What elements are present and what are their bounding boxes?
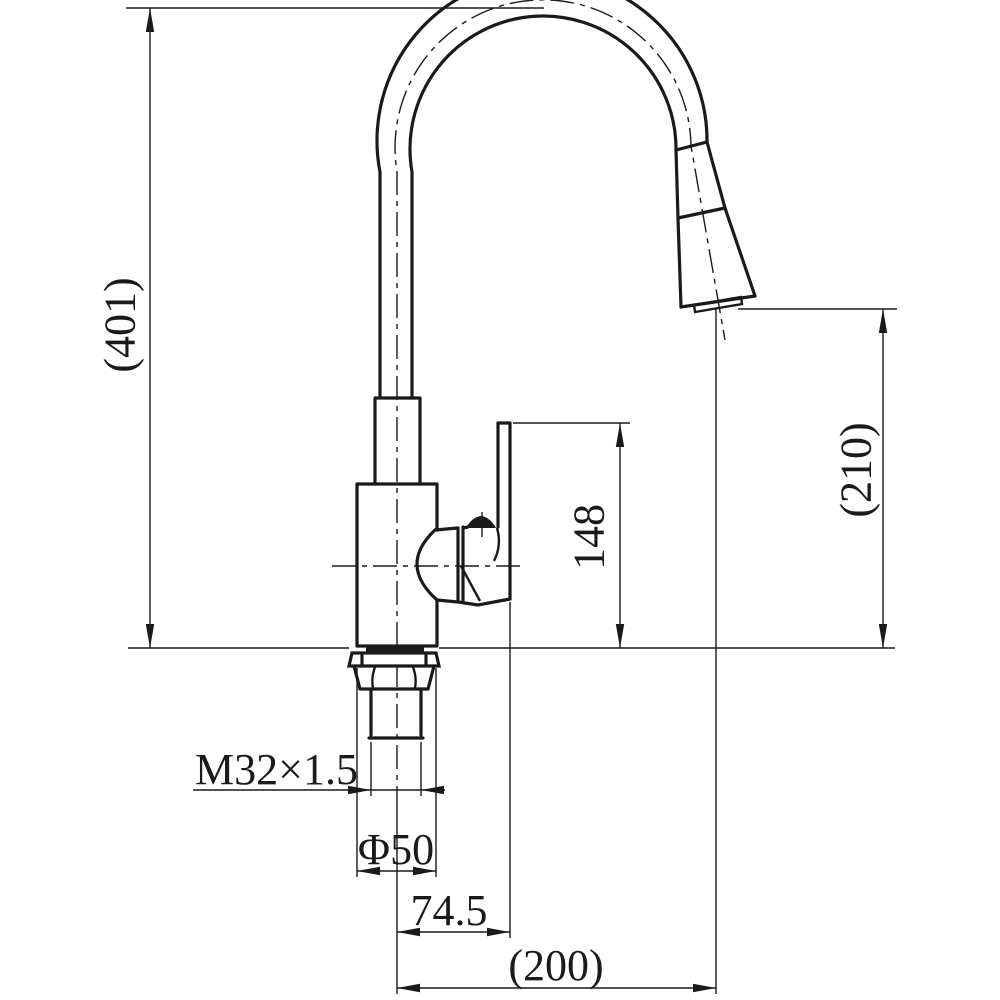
faucet-technical-drawing: (401) (210) 148 M32×1.5 Φ50 74.5 (200): [0, 0, 1000, 1000]
dim-label-center-to-handle: 74.5: [411, 886, 488, 935]
drawing-canvas: (401) (210) 148 M32×1.5 Φ50 74.5 (200): [0, 0, 1000, 1000]
dim-label-handle-height: 148: [565, 504, 614, 570]
dim-label-base-diameter: Φ50: [358, 825, 434, 874]
dim-label-outlet-height: (210): [832, 422, 881, 517]
dim-label-reach: (200): [508, 941, 603, 990]
dim-label-thread: M32×1.5: [195, 745, 358, 794]
dim-label-total-height: (401): [96, 277, 145, 372]
